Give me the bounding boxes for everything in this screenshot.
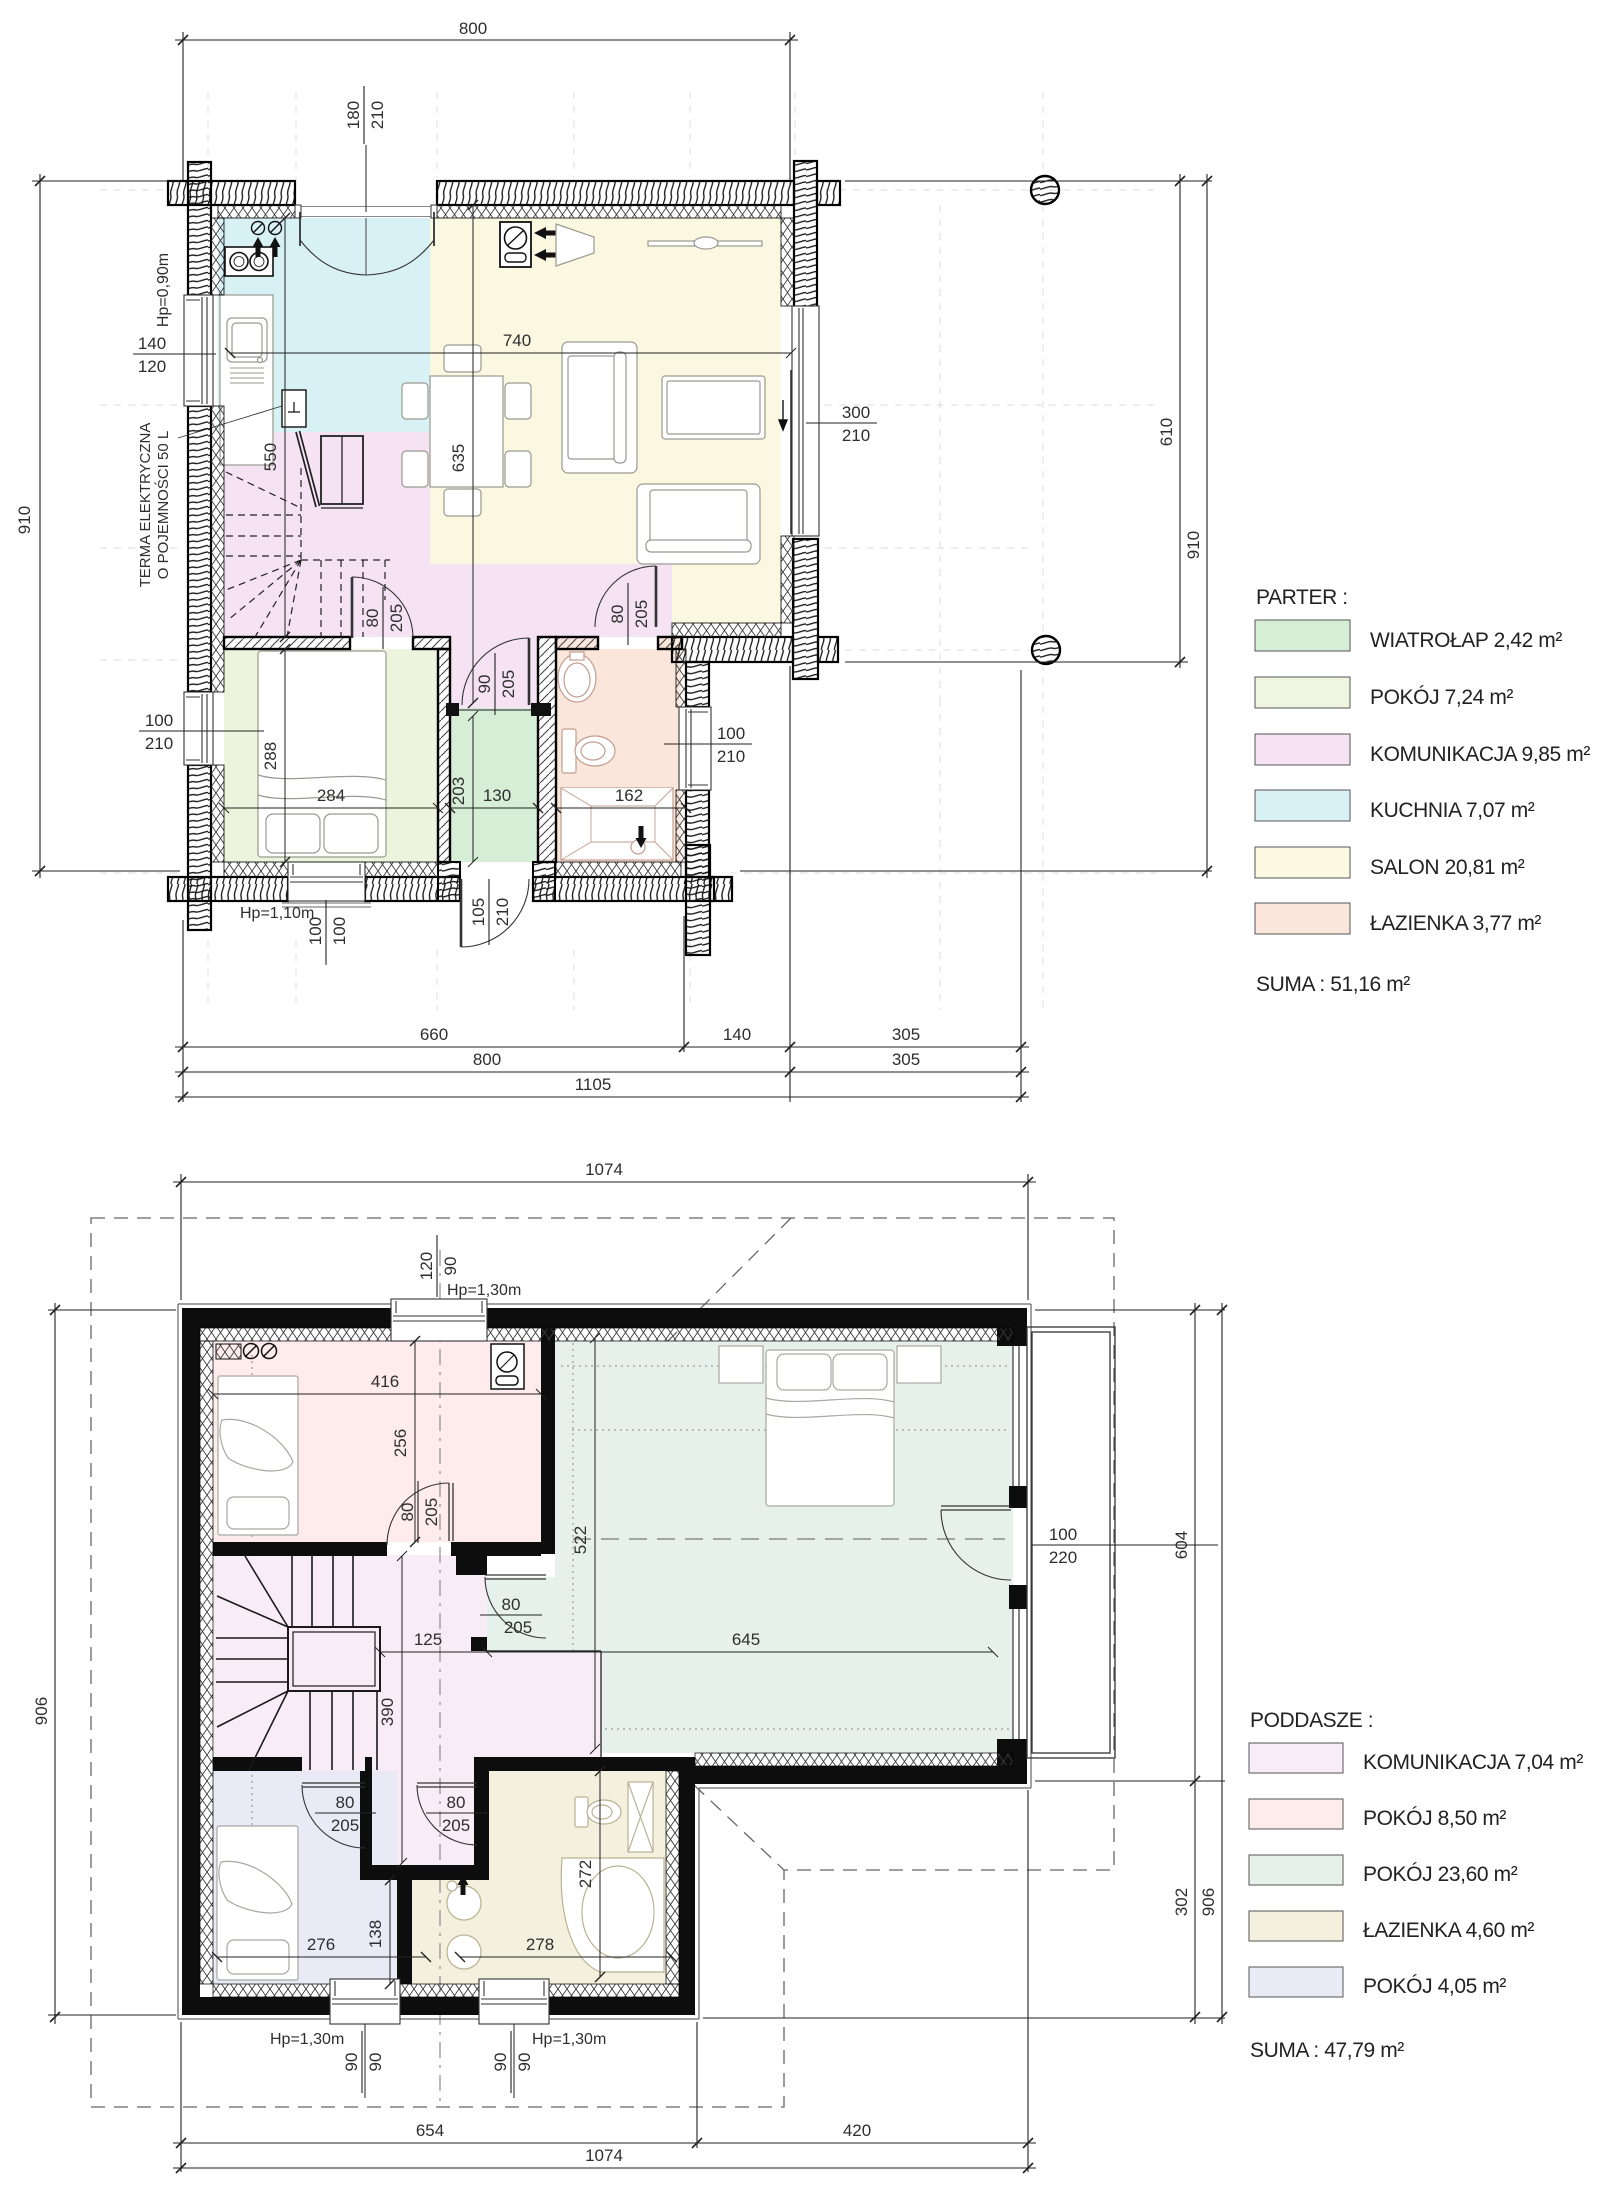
svg-text:ŁAZIENKA 3,77 m²: ŁAZIENKA 3,77 m² <box>1370 912 1541 935</box>
svg-text:180: 180 <box>344 101 363 129</box>
svg-text:305: 305 <box>892 1050 920 1069</box>
svg-text:80: 80 <box>502 1595 521 1614</box>
svg-text:420: 420 <box>843 2121 871 2140</box>
svg-text:90: 90 <box>441 1257 460 1276</box>
svg-text:ŁAZIENKA 4,60 m²: ŁAZIENKA 4,60 m² <box>1363 1919 1534 1942</box>
svg-text:Hp=0,90m: Hp=0,90m <box>155 253 172 327</box>
svg-text:90: 90 <box>491 2053 510 2072</box>
svg-text:PARTER :: PARTER : <box>1256 586 1348 609</box>
svg-text:130: 130 <box>483 786 511 805</box>
svg-text:80: 80 <box>336 1793 355 1812</box>
svg-text:O POJEMNOŚCI 50 L: O POJEMNOŚCI 50 L <box>154 431 172 579</box>
svg-text:90: 90 <box>475 675 494 694</box>
svg-text:POKÓJ 4,05 m²: POKÓJ 4,05 m² <box>1363 1975 1506 1998</box>
svg-text:KOMUNIKACJA 7,04 m²: KOMUNIKACJA 7,04 m² <box>1363 1751 1583 1774</box>
svg-text:Hp=1,30m: Hp=1,30m <box>270 2031 344 2048</box>
svg-text:210: 210 <box>717 747 745 766</box>
svg-text:120: 120 <box>417 1252 436 1280</box>
svg-text:645: 645 <box>732 1630 760 1649</box>
svg-text:205: 205 <box>499 670 518 698</box>
svg-text:Hp=1,30m: Hp=1,30m <box>532 2031 606 2048</box>
svg-text:210: 210 <box>842 426 870 445</box>
svg-text:105: 105 <box>469 898 488 926</box>
svg-text:Hp=1,30m: Hp=1,30m <box>447 1282 521 1299</box>
svg-text:1074: 1074 <box>585 1160 623 1179</box>
svg-text:100: 100 <box>330 917 349 945</box>
svg-text:SALON 20,81 m²: SALON 20,81 m² <box>1370 856 1525 879</box>
svg-text:205: 205 <box>422 1498 441 1526</box>
svg-text:416: 416 <box>371 1372 399 1391</box>
svg-text:90: 90 <box>515 2053 534 2072</box>
svg-text:550: 550 <box>261 443 280 471</box>
svg-text:80: 80 <box>398 1503 417 1522</box>
svg-text:138: 138 <box>366 1920 385 1948</box>
svg-text:PODDASZE :: PODDASZE : <box>1250 1709 1373 1732</box>
svg-text:654: 654 <box>416 2121 444 2140</box>
svg-text:210: 210 <box>493 898 512 926</box>
svg-text:740: 740 <box>503 331 531 350</box>
svg-text:220: 220 <box>1049 1548 1077 1567</box>
svg-text:1105: 1105 <box>575 1075 612 1094</box>
svg-text:125: 125 <box>414 1630 442 1649</box>
svg-text:800: 800 <box>473 1050 501 1069</box>
svg-text:80: 80 <box>447 1793 466 1812</box>
svg-text:Hp=1,10m: Hp=1,10m <box>240 905 314 922</box>
svg-text:TERMA ELEKTRYCZNA: TERMA ELEKTRYCZNA <box>137 423 154 588</box>
svg-text:WIATROŁAP 2,42 m²: WIATROŁAP 2,42 m² <box>1370 629 1562 652</box>
svg-text:205: 205 <box>331 1816 359 1835</box>
svg-text:272: 272 <box>576 1860 595 1888</box>
svg-text:KOMUNIKACJA 9,85 m²: KOMUNIKACJA 9,85 m² <box>1370 743 1590 766</box>
svg-text:80: 80 <box>363 609 382 628</box>
svg-text:800: 800 <box>459 19 487 38</box>
svg-text:100: 100 <box>145 711 173 730</box>
svg-text:906: 906 <box>32 1697 51 1725</box>
svg-text:90: 90 <box>342 2053 361 2072</box>
svg-text:906: 906 <box>1199 1888 1218 1916</box>
svg-text:100: 100 <box>1049 1525 1077 1544</box>
svg-text:POKÓJ 23,60 m²: POKÓJ 23,60 m² <box>1363 1863 1518 1886</box>
svg-text:288: 288 <box>261 742 280 770</box>
svg-text:205: 205 <box>387 604 406 632</box>
svg-text:POKÓJ 8,50 m²: POKÓJ 8,50 m² <box>1363 1807 1506 1830</box>
svg-text:910: 910 <box>1184 531 1203 559</box>
svg-text:210: 210 <box>368 101 387 129</box>
svg-text:256: 256 <box>391 1429 410 1457</box>
svg-text:205: 205 <box>632 600 651 628</box>
svg-text:203: 203 <box>449 777 468 805</box>
svg-text:90: 90 <box>366 2053 385 2072</box>
svg-text:80: 80 <box>608 605 627 624</box>
svg-text:KUCHNIA 7,07 m²: KUCHNIA 7,07 m² <box>1370 799 1535 822</box>
svg-text:140: 140 <box>723 1025 751 1044</box>
svg-text:205: 205 <box>504 1618 532 1637</box>
svg-text:300: 300 <box>842 403 870 422</box>
svg-text:305: 305 <box>892 1025 920 1044</box>
svg-text:205: 205 <box>442 1816 470 1835</box>
svg-text:660: 660 <box>420 1025 448 1044</box>
svg-text:278: 278 <box>526 1935 554 1954</box>
svg-text:302: 302 <box>1172 1888 1191 1916</box>
svg-text:276: 276 <box>307 1935 335 1954</box>
svg-text:390: 390 <box>378 1698 397 1726</box>
svg-text:210: 210 <box>145 734 173 753</box>
svg-text:100: 100 <box>717 724 745 743</box>
svg-text:SUMA : 47,79 m²: SUMA : 47,79 m² <box>1250 2039 1404 2062</box>
svg-text:SUMA : 51,16 m²: SUMA : 51,16 m² <box>1256 973 1410 996</box>
svg-text:522: 522 <box>571 1526 590 1554</box>
svg-text:1074: 1074 <box>585 2146 623 2165</box>
svg-text:610: 610 <box>1157 418 1176 446</box>
svg-text:POKÓJ 7,24 m²: POKÓJ 7,24 m² <box>1370 686 1513 709</box>
svg-text:284: 284 <box>317 786 345 805</box>
svg-text:635: 635 <box>449 444 468 472</box>
svg-text:120: 120 <box>138 357 166 376</box>
svg-text:140: 140 <box>138 334 166 353</box>
svg-text:162: 162 <box>615 786 643 805</box>
svg-text:910: 910 <box>15 506 34 534</box>
